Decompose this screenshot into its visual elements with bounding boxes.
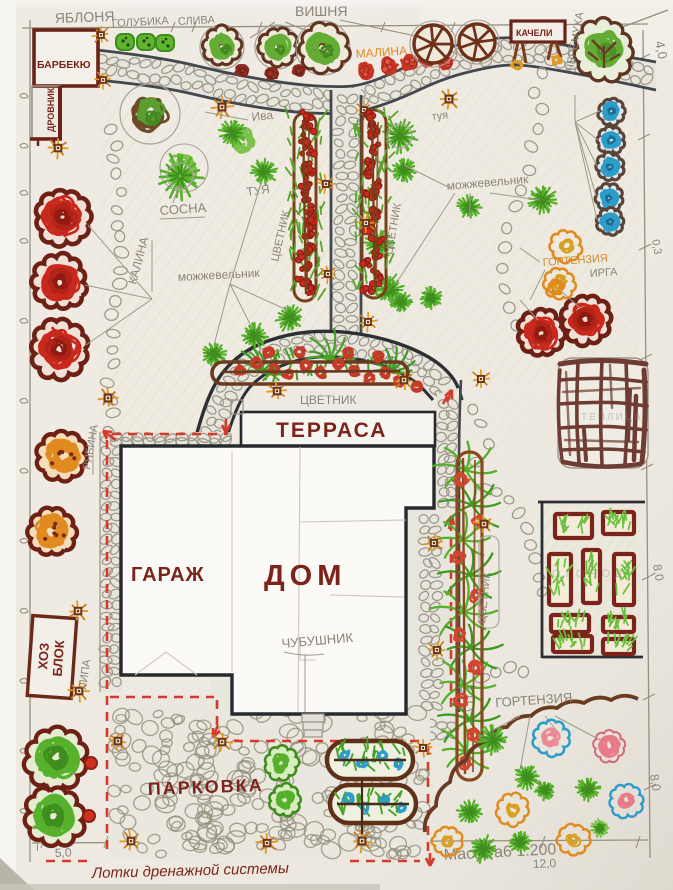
svg-text:I: I	[36, 843, 39, 854]
svg-text:ГАРАЖ: ГАРАЖ	[131, 564, 205, 586]
svg-text:ТЕРРАСА: ТЕРРАСА	[276, 419, 387, 442]
svg-text:ПАРКОВКА: ПАРКОВКА	[147, 775, 264, 799]
svg-text:ЯБЛОНЯ: ЯБЛОНЯ	[55, 8, 115, 26]
svg-text:туя: туя	[431, 109, 449, 123]
svg-text:Ива: Ива	[251, 108, 274, 124]
svg-text:5,0: 5,0	[55, 845, 72, 860]
svg-text:БЛОК: БЛОК	[50, 640, 67, 677]
svg-text:ЦВЕТНИК: ЦВЕТНИК	[300, 393, 357, 407]
svg-text:ДОМ: ДОМ	[264, 560, 346, 592]
svg-text:ВИШНЯ: ВИШНЯ	[295, 3, 347, 19]
svg-text:ТЕПЛИЦА: ТЕПЛИЦА	[581, 412, 643, 423]
svg-text:8,0: 8,0	[647, 773, 664, 792]
svg-text:КАЧЕЛИ: КАЧЕЛИ	[516, 28, 552, 38]
svg-text:ИРГА: ИРГА	[589, 266, 618, 280]
svg-text:8,0: 8,0	[650, 563, 667, 582]
svg-text:СЛИВА: СЛИВА	[178, 14, 216, 28]
svg-text:ОГОРОД: ОГОРОД	[552, 568, 627, 580]
svg-text:ДРОВНИК: ДРОВНИК	[46, 87, 56, 132]
svg-text:БАРБЕКЮ: БАРБЕКЮ	[37, 59, 91, 71]
